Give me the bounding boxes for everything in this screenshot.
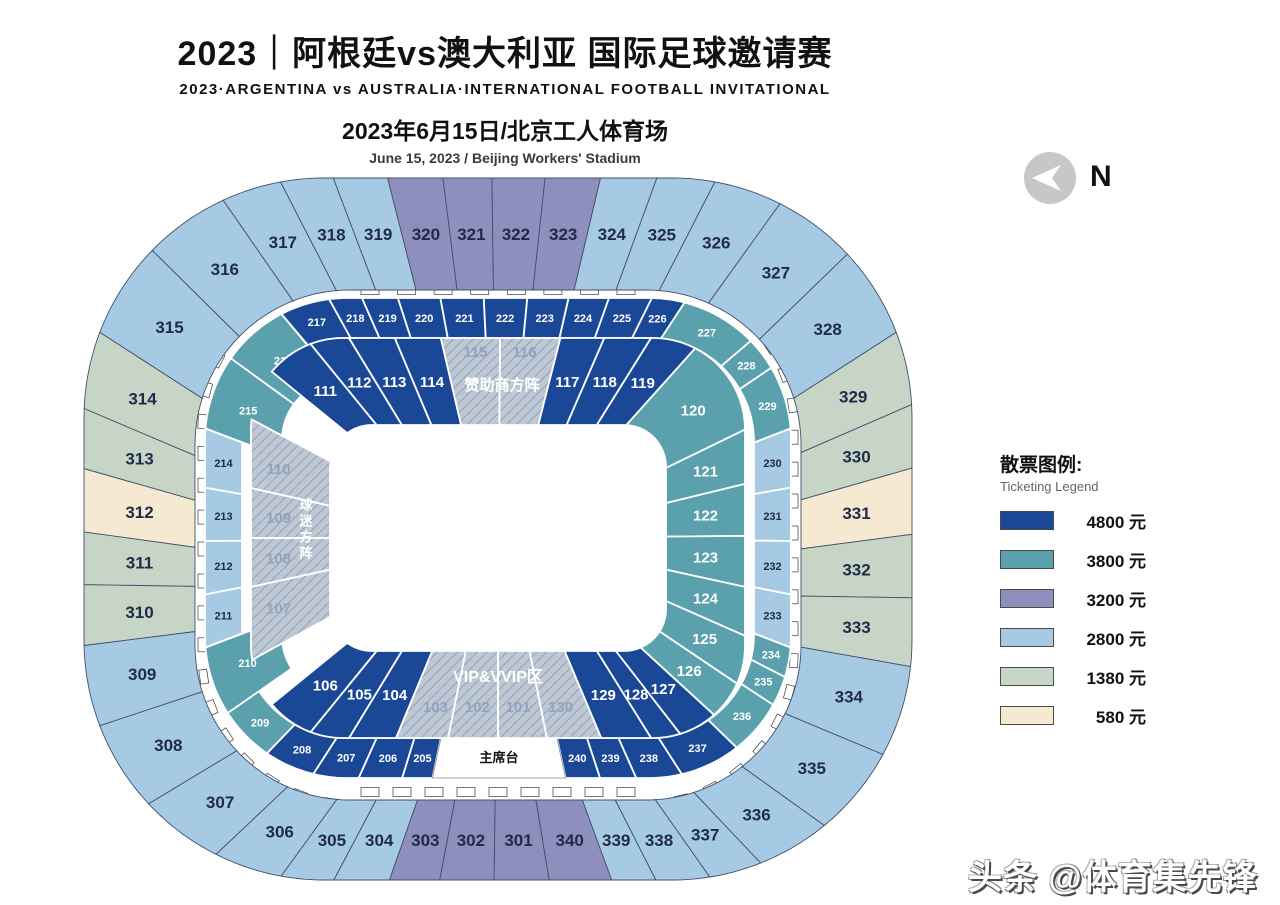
legend-item-p2800: 2800 元	[1000, 625, 1200, 650]
section-label-220: 220	[415, 313, 433, 325]
section-label-227: 227	[698, 327, 716, 339]
section-label-114: 114	[420, 374, 445, 391]
section-label-223: 223	[536, 313, 554, 325]
section-label-219: 219	[378, 313, 396, 325]
section-label-231: 231	[763, 511, 781, 523]
event-date-venue-en: June 15, 2023 / Beijing Workers' Stadium	[0, 150, 1010, 166]
vip-zone-label: VIP&VVIP区	[453, 668, 543, 686]
gate-marker	[585, 788, 603, 797]
gate-marker	[199, 669, 209, 684]
section-label-340: 340	[556, 831, 584, 850]
section-label-236: 236	[733, 711, 751, 723]
section-label-312: 312	[125, 503, 153, 522]
section-label-238: 238	[640, 753, 658, 765]
section-label-112: 112	[347, 374, 371, 391]
title-block: 2023｜阿根廷vs澳大利亚 国际足球邀请赛 2023·ARGENTINA vs…	[0, 26, 1010, 166]
section-label-102: 102	[465, 699, 490, 716]
section-label-主席台: 主席台	[479, 750, 518, 765]
legend-price-p2800: 2800 元	[1068, 625, 1146, 650]
section-label-234: 234	[762, 650, 781, 662]
sponsor-zone-label: 赞助商方阵	[463, 376, 539, 394]
section-label-331: 331	[842, 504, 870, 523]
section-label-104: 104	[382, 687, 408, 704]
legend-swatch-p3800	[1000, 550, 1054, 569]
section-label-333: 333	[842, 618, 870, 637]
legend-swatch-p2800	[1000, 628, 1054, 647]
section-label-119: 119	[631, 375, 655, 392]
section-label-314: 314	[128, 389, 157, 408]
section-label-338: 338	[645, 831, 673, 850]
event-title-cn: 2023｜阿根廷vs澳大利亚 国际足球邀请赛	[0, 26, 1010, 75]
section-label-110: 110	[266, 461, 290, 478]
section-label-328: 328	[814, 320, 842, 339]
section-label-318: 318	[317, 225, 345, 244]
section-label-321: 321	[457, 225, 485, 244]
section-label-316: 316	[211, 260, 239, 279]
section-label-107: 107	[266, 601, 291, 618]
north-arrow-icon	[1018, 146, 1082, 210]
section-label-309: 309	[128, 665, 156, 684]
section-label-208: 208	[293, 744, 311, 756]
section-label-117: 117	[555, 374, 579, 391]
ticketing-legend: 散票图例: Ticketing Legend 4800 元3800 元3200 …	[1000, 450, 1200, 742]
section-label-217: 217	[308, 317, 326, 329]
section-label-233: 233	[763, 611, 781, 623]
section-label-111: 111	[314, 383, 337, 400]
section-label-122: 122	[693, 507, 718, 524]
section-label-304: 304	[365, 831, 394, 850]
section-label-307: 307	[206, 793, 234, 812]
section-label-109: 109	[266, 510, 291, 527]
section-label-118: 118	[593, 374, 617, 391]
section-label-305: 305	[318, 831, 346, 850]
north-indicator: N	[1018, 146, 1138, 210]
legend-swatch-p1380	[1000, 667, 1054, 686]
legend-rows: 4800 元3800 元3200 元2800 元1380 元580 元	[1000, 508, 1200, 728]
section-label-121: 121	[693, 464, 718, 481]
legend-item-p580: 580 元	[1000, 703, 1200, 728]
gate-marker	[425, 788, 443, 797]
section-label-108: 108	[266, 551, 291, 568]
section-label-337: 337	[691, 826, 719, 845]
section-label-310: 310	[125, 603, 153, 622]
gate-marker	[489, 788, 507, 797]
legend-swatch-p3200	[1000, 589, 1054, 608]
legend-item-p1380: 1380 元	[1000, 664, 1200, 689]
section-label-311: 311	[126, 554, 153, 573]
section-label-335: 335	[798, 759, 826, 778]
legend-swatch-p580	[1000, 706, 1054, 725]
watermark: 头条 @体育集先锋	[968, 850, 1268, 899]
legend-item-p3800: 3800 元	[1000, 547, 1200, 572]
section-label-126: 126	[677, 663, 702, 680]
section-label-324: 324	[598, 225, 627, 244]
gate-marker	[617, 788, 635, 797]
section-label-228: 228	[737, 360, 755, 372]
gate-marker	[361, 788, 379, 797]
legend-price-p580: 580 元	[1068, 703, 1146, 728]
page: 3163173183193203213223233243253263273283…	[0, 0, 1280, 905]
section-label-317: 317	[269, 233, 297, 252]
legend-subtitle: Ticketing Legend	[1000, 479, 1200, 494]
section-label-229: 229	[758, 401, 776, 413]
section-label-225: 225	[613, 313, 631, 325]
section-label-101: 101	[506, 699, 531, 716]
section-label-103: 103	[423, 699, 448, 716]
section-label-239: 239	[601, 753, 619, 765]
section-label-205: 205	[413, 753, 431, 765]
event-title-en: 2023·ARGENTINA vs AUSTRALIA·INTERNATIONA…	[0, 81, 1010, 98]
legend-swatch-p4800	[1000, 511, 1054, 530]
section-label-327: 327	[762, 263, 790, 282]
event-date-venue-cn: 2023年6月15日/北京工人体育场	[0, 112, 1010, 146]
section-label-224: 224	[574, 313, 593, 325]
section-label-325: 325	[648, 225, 676, 244]
north-label: N	[1090, 160, 1112, 194]
section-label-124: 124	[693, 591, 719, 608]
legend-item-p4800: 4800 元	[1000, 508, 1200, 533]
gate-marker	[521, 788, 539, 797]
section-label-334: 334	[835, 688, 864, 707]
section-label-326: 326	[702, 234, 730, 253]
section-label-230: 230	[763, 458, 781, 470]
section-label-130: 130	[548, 699, 573, 716]
legend-price-p3200: 3200 元	[1068, 586, 1146, 611]
section-label-116: 116	[512, 344, 536, 361]
legend-price-p3800: 3800 元	[1068, 547, 1146, 572]
section-label-308: 308	[154, 736, 182, 755]
section-label-127: 127	[651, 681, 676, 698]
section-label-125: 125	[692, 631, 717, 648]
section-label-211: 211	[215, 611, 233, 623]
section-label-206: 206	[379, 753, 397, 765]
section-label-105: 105	[347, 686, 372, 703]
section-label-232: 232	[763, 561, 781, 573]
legend-price-p4800: 4800 元	[1068, 508, 1146, 533]
section-label-302: 302	[457, 831, 485, 850]
section-label-221: 221	[455, 313, 473, 325]
section-label-320: 320	[412, 225, 440, 244]
section-label-129: 129	[591, 687, 616, 704]
gate-marker	[457, 788, 475, 797]
section-label-106: 106	[313, 678, 338, 695]
section-label-212: 212	[214, 561, 232, 573]
section-label-303: 303	[411, 831, 439, 850]
section-label-313: 313	[125, 449, 153, 468]
section-label-235: 235	[754, 677, 772, 689]
section-label-115: 115	[463, 344, 487, 361]
legend-title: 散票图例:	[1000, 450, 1200, 477]
section-label-323: 323	[549, 225, 577, 244]
section-label-329: 329	[839, 388, 867, 407]
section-label-336: 336	[742, 805, 770, 824]
section-label-213: 213	[214, 511, 232, 523]
section-label-222: 222	[496, 313, 514, 325]
section-label-120: 120	[681, 403, 706, 420]
section-label-339: 339	[602, 831, 630, 850]
section-label-214: 214	[214, 458, 233, 470]
section-label-218: 218	[346, 313, 364, 325]
section-label-319: 319	[364, 225, 392, 244]
section-label-315: 315	[155, 318, 183, 337]
section-label-240: 240	[568, 753, 586, 765]
legend-price-p1380: 1380 元	[1068, 664, 1146, 689]
section-label-226: 226	[648, 314, 666, 326]
fan-zone-label: 球迷方阵	[298, 497, 314, 562]
section-label-207: 207	[337, 753, 355, 765]
section-label-215: 215	[239, 406, 257, 418]
gate-marker	[790, 653, 799, 667]
section-label-332: 332	[842, 560, 870, 579]
gate-marker	[393, 788, 411, 797]
section-label-209: 209	[251, 717, 269, 729]
section-label-330: 330	[842, 447, 870, 466]
section-label-322: 322	[502, 225, 530, 244]
section-label-237: 237	[688, 743, 706, 755]
section-label-113: 113	[382, 374, 406, 391]
section-label-123: 123	[693, 550, 718, 567]
section-label-301: 301	[504, 831, 532, 850]
gate-marker	[553, 788, 571, 797]
section-label-306: 306	[266, 823, 294, 842]
legend-item-p3200: 3200 元	[1000, 586, 1200, 611]
